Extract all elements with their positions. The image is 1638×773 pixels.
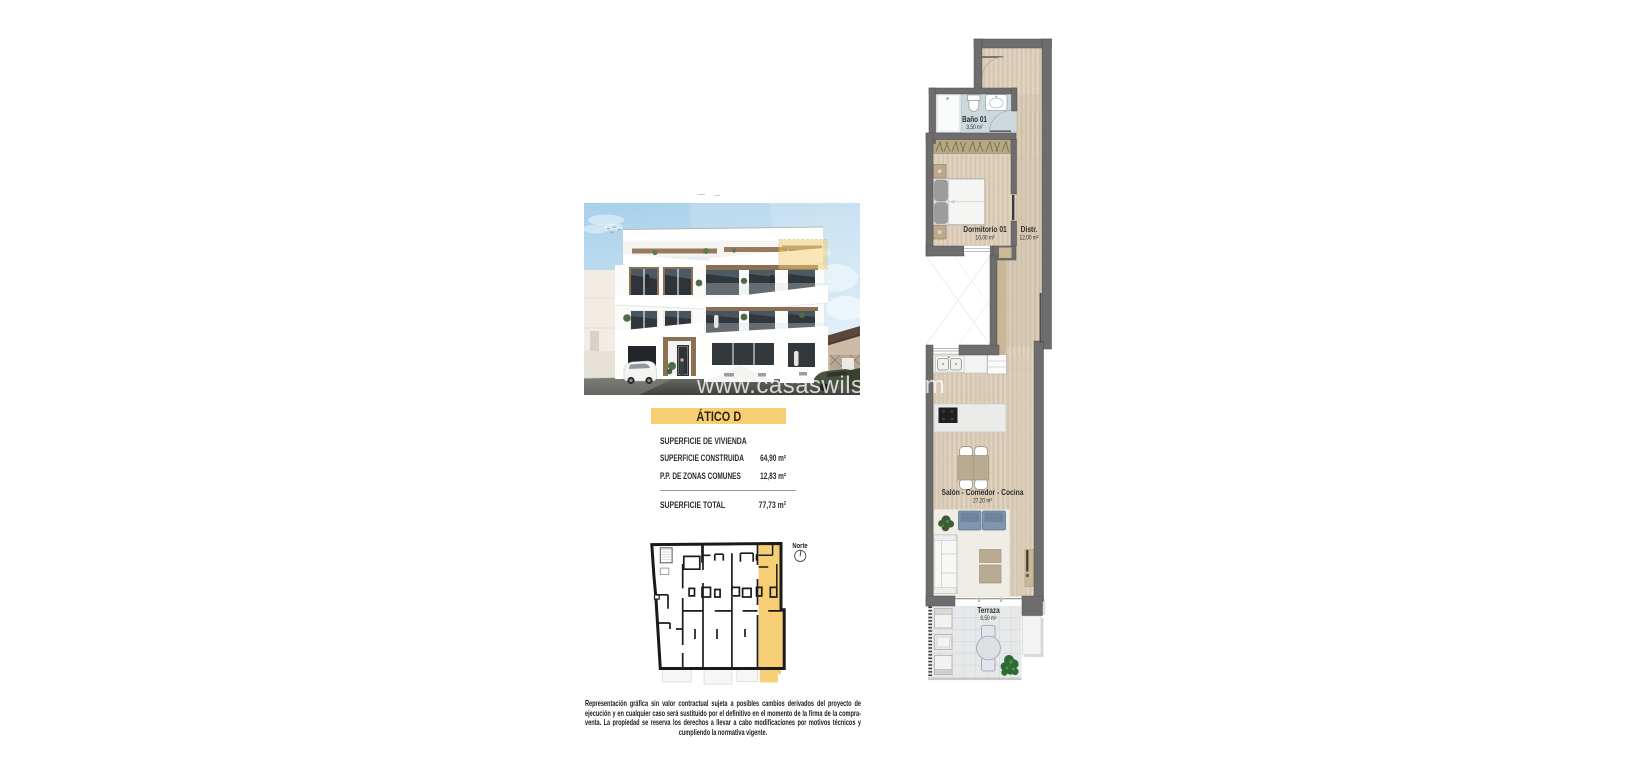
svg-text:Terraza: Terraza — [977, 605, 1000, 615]
svg-text:Dormitorio 01: Dormitorio 01 — [963, 224, 1007, 234]
svg-text:3,50 m²: 3,50 m² — [966, 125, 982, 132]
svg-text:Baño 01: Baño 01 — [962, 114, 987, 124]
svg-text:Salón - Comedor - Cocina: Salón - Comedor - Cocina — [942, 487, 1025, 497]
svg-text:10,00 m²: 10,00 m² — [976, 235, 995, 242]
svg-text:Distr.: Distr. — [1021, 224, 1038, 234]
svg-text:Norte: Norte — [792, 542, 807, 550]
svg-text:27,20 m²: 27,20 m² — [973, 498, 992, 505]
svg-text:8,50 m²: 8,50 m² — [980, 616, 996, 623]
svg-text:12,00 m²: 12,00 m² — [1020, 235, 1039, 242]
